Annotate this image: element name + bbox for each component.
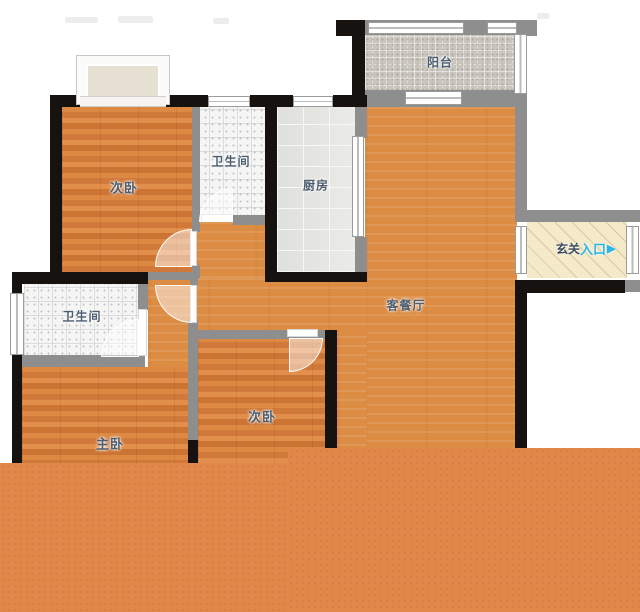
balcony-corner <box>336 20 352 36</box>
entrance-label: 入口 <box>580 239 606 258</box>
corridor-floor <box>195 222 265 282</box>
entry-bottom-wall <box>515 280 625 293</box>
west-mid-wall <box>12 272 148 284</box>
bath-top-window <box>208 96 250 107</box>
living-right-wall-bottom <box>515 293 527 448</box>
balcony-window-top-a <box>368 22 464 34</box>
entry-labels: 玄关 入口 ▶ <box>556 239 616 258</box>
entry-left-door <box>515 226 527 274</box>
bay-window-sill <box>80 96 166 107</box>
balcony-label: 阳台 <box>427 54 453 71</box>
kitchen-window <box>293 96 333 107</box>
master-label: 主卧 <box>96 434 124 453</box>
living-floor <box>365 107 517 463</box>
bath-top-bottom-wall <box>233 215 265 225</box>
living-label: 客餐厅 <box>386 297 425 314</box>
kitchen-right-wall-bottom <box>355 237 367 275</box>
bedroom-bottom-label: 次卧 <box>248 407 276 426</box>
kitchen-bottom-wall <box>265 272 367 282</box>
bath-left-label: 卫生间 <box>62 308 101 325</box>
bath-left-right-wall <box>138 284 148 310</box>
entrance-arrow-icon: ▶ <box>607 242 615 255</box>
watermark-smudge <box>118 16 153 23</box>
balcony-left-wall <box>352 20 365 107</box>
bath-left-door <box>138 309 147 356</box>
bottom-band-left <box>0 463 288 612</box>
master-divider-lower <box>188 440 198 463</box>
floor-plan: 次卧 卫生间 厨房 阳台 客餐厅 卫生间 主卧 次卧 玄关 入口 ▶ <box>0 0 640 612</box>
bedroom-top-label: 次卧 <box>110 178 138 197</box>
balcony-window-right <box>514 34 527 94</box>
bottom-band-right <box>288 448 640 612</box>
kitchen-label: 厨房 <box>303 177 329 194</box>
watermark-smudge <box>65 17 98 23</box>
bath-left-window <box>10 293 24 355</box>
balcony-door <box>405 91 462 105</box>
kitchen-sliding-door <box>352 136 364 237</box>
balcony-window-top-b <box>487 22 517 34</box>
living-right-wall-top <box>515 93 527 212</box>
watermark-smudge <box>537 13 549 19</box>
entry-top-wall <box>515 210 640 222</box>
top-wall-mid <box>250 95 293 107</box>
entry-entrance-door <box>626 226 639 274</box>
bedroom-bottom-door <box>287 329 318 337</box>
bedroom-bottom-right-wall <box>325 330 337 448</box>
kitchen-left-wall <box>265 107 277 282</box>
entry-bottom-right-wall <box>625 280 640 292</box>
entry-hall-label: 玄关 <box>556 240 580 257</box>
bedroom-top-right-wall <box>192 107 200 232</box>
left-wall-lower <box>12 353 22 463</box>
bedroom-top-left-wall <box>50 95 62 272</box>
watermark-smudge <box>213 18 229 24</box>
bath-top-label: 卫生间 <box>211 153 250 170</box>
